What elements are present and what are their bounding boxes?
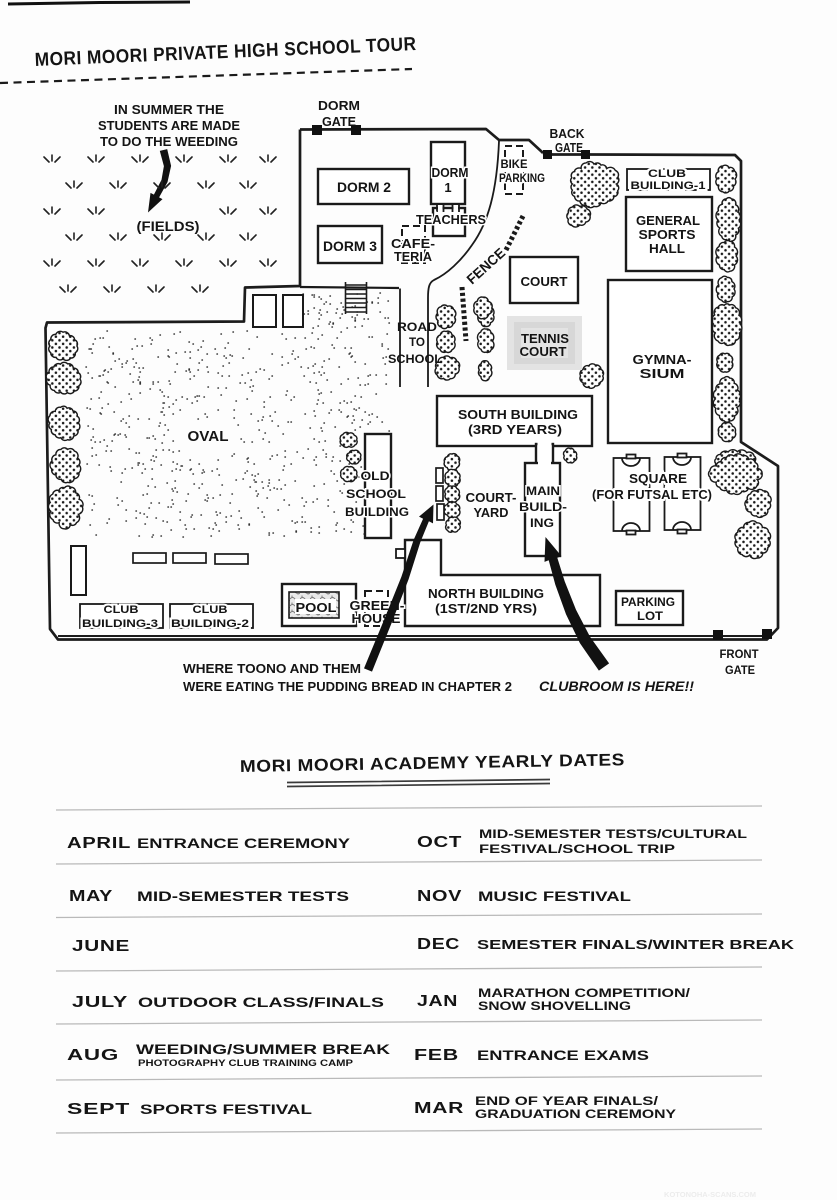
svg-text:OVAL: OVAL bbox=[188, 429, 229, 445]
svg-text:CLUB: CLUB bbox=[648, 168, 686, 180]
svg-text:BUILDING-3: BUILDING-3 bbox=[82, 618, 158, 630]
svg-text:BACK: BACK bbox=[550, 126, 586, 141]
svg-text:JULY: JULY bbox=[72, 994, 128, 1011]
svg-text:WHERE TOONO AND THEM: WHERE TOONO AND THEM bbox=[183, 661, 361, 676]
svg-text:BUILDING-1: BUILDING-1 bbox=[631, 180, 706, 192]
svg-text:WEEDING/SUMMER BREAK: WEEDING/SUMMER BREAK bbox=[136, 1042, 390, 1057]
svg-text:MID-SEMESTER TESTS/CULTURAL: MID-SEMESTER TESTS/CULTURAL bbox=[479, 827, 747, 841]
svg-text:DEC: DEC bbox=[417, 936, 460, 953]
svg-text:CLUBROOM IS HERE!!: CLUBROOM IS HERE!! bbox=[539, 679, 695, 694]
svg-text:ING: ING bbox=[530, 516, 554, 530]
svg-text:KOTONOHA-SCANS.COM: KOTONOHA-SCANS.COM bbox=[664, 1190, 756, 1199]
svg-text:SEMESTER FINALS/WINTER BREAK: SEMESTER FINALS/WINTER BREAK bbox=[477, 937, 795, 952]
svg-text:JUNE: JUNE bbox=[72, 938, 130, 955]
svg-text:GATE: GATE bbox=[322, 114, 356, 129]
svg-text:BUILD-: BUILD- bbox=[519, 500, 567, 514]
svg-text:JAN: JAN bbox=[417, 993, 458, 1010]
svg-text:ENTRANCE EXAMS: ENTRANCE EXAMS bbox=[477, 1048, 649, 1063]
svg-text:MAY: MAY bbox=[69, 888, 113, 905]
svg-text:SPORTS: SPORTS bbox=[639, 228, 696, 242]
svg-text:NORTH BUILDING: NORTH BUILDING bbox=[428, 586, 544, 601]
svg-text:TERIA: TERIA bbox=[394, 249, 433, 264]
svg-text:FESTIVAL/SCHOOL TRIP: FESTIVAL/SCHOOL TRIP bbox=[479, 842, 675, 856]
svg-text:GATE: GATE bbox=[725, 663, 755, 677]
svg-text:GATE: GATE bbox=[555, 140, 583, 155]
svg-text:MARATHON COMPETITION/: MARATHON COMPETITION/ bbox=[478, 986, 691, 1000]
svg-text:APRIL: APRIL bbox=[67, 835, 131, 852]
svg-text:CLUB: CLUB bbox=[193, 604, 228, 616]
svg-text:FRONT: FRONT bbox=[720, 647, 760, 661]
svg-text:1: 1 bbox=[444, 180, 451, 195]
svg-text:CLUB: CLUB bbox=[104, 604, 139, 616]
svg-text:SCHOOL: SCHOOL bbox=[388, 352, 442, 366]
svg-text:DORM 2: DORM 2 bbox=[337, 179, 391, 195]
svg-text:GENERAL: GENERAL bbox=[636, 214, 700, 228]
svg-text:PARKING: PARKING bbox=[621, 595, 675, 609]
svg-text:LOT: LOT bbox=[637, 609, 664, 623]
svg-text:MID-SEMESTER TESTS: MID-SEMESTER TESTS bbox=[137, 889, 349, 904]
svg-text:OLD: OLD bbox=[361, 469, 390, 483]
svg-text:COURT: COURT bbox=[520, 345, 567, 359]
svg-text:HALL: HALL bbox=[649, 242, 685, 256]
svg-text:NOV: NOV bbox=[417, 888, 462, 905]
svg-text:ENTRANCE CEREMONY: ENTRANCE CEREMONY bbox=[137, 836, 350, 851]
svg-text:PHOTOGRAPHY CLUB TRAINING CAMP: PHOTOGRAPHY CLUB TRAINING CAMP bbox=[138, 1058, 353, 1068]
svg-text:MAIN: MAIN bbox=[526, 484, 560, 498]
svg-text:SEPT: SEPT bbox=[67, 1101, 130, 1118]
svg-text:COURT-: COURT- bbox=[466, 490, 517, 505]
svg-text:MUSIC FESTIVAL: MUSIC FESTIVAL bbox=[478, 889, 631, 904]
svg-text:(FIELDS): (FIELDS) bbox=[137, 219, 200, 234]
svg-text:(FOR FUTSAL ETC): (FOR FUTSAL ETC) bbox=[592, 487, 712, 502]
svg-text:ROAD: ROAD bbox=[397, 320, 437, 334]
svg-text:SIUM: SIUM bbox=[640, 366, 685, 381]
svg-text:OUTDOOR CLASS/FINALS: OUTDOOR CLASS/FINALS bbox=[138, 995, 384, 1010]
svg-text:COURT: COURT bbox=[521, 274, 568, 289]
svg-text:TEACHERS: TEACHERS bbox=[416, 212, 486, 227]
svg-text:BIKE: BIKE bbox=[501, 159, 528, 171]
svg-text:(3RD YEARS): (3RD YEARS) bbox=[468, 422, 562, 437]
svg-text:WERE EATING THE PUDDING BREAD: WERE EATING THE PUDDING BREAD IN CHAPTER… bbox=[183, 679, 512, 694]
svg-text:TO: TO bbox=[409, 335, 425, 349]
svg-text:POOL: POOL bbox=[296, 600, 337, 615]
svg-text:SOUTH BUILDING: SOUTH BUILDING bbox=[458, 407, 578, 422]
svg-text:MAR: MAR bbox=[414, 1100, 464, 1117]
svg-text:BUILDING: BUILDING bbox=[345, 505, 409, 519]
svg-text:SNOW SHOVELLING: SNOW SHOVELLING bbox=[478, 999, 631, 1013]
svg-text:(1ST/2ND YRS): (1ST/2ND YRS) bbox=[435, 601, 537, 616]
svg-text:TO DO THE WEEDING: TO DO THE WEEDING bbox=[100, 134, 238, 149]
svg-text:OCT: OCT bbox=[417, 834, 462, 851]
svg-text:TENNIS: TENNIS bbox=[521, 332, 569, 346]
svg-text:END OF YEAR FINALS/: END OF YEAR FINALS/ bbox=[475, 1094, 659, 1108]
svg-text:DORM: DORM bbox=[318, 98, 360, 113]
svg-text:GYMNA-: GYMNA- bbox=[633, 352, 692, 367]
svg-text:IN SUMMER THE: IN SUMMER THE bbox=[114, 102, 224, 117]
svg-text:DORM: DORM bbox=[432, 165, 469, 180]
svg-text:YARD: YARD bbox=[474, 505, 509, 520]
svg-text:PARKING: PARKING bbox=[499, 173, 545, 185]
svg-text:SCHOOL: SCHOOL bbox=[346, 487, 406, 501]
svg-text:SPORTS FESTIVAL: SPORTS FESTIVAL bbox=[140, 1102, 312, 1117]
svg-text:SQUARE: SQUARE bbox=[629, 471, 687, 486]
svg-text:DORM 3: DORM 3 bbox=[323, 238, 377, 254]
svg-text:BUILDING-2: BUILDING-2 bbox=[171, 618, 249, 630]
svg-text:FEB: FEB bbox=[414, 1047, 459, 1064]
svg-text:STUDENTS ARE MADE: STUDENTS ARE MADE bbox=[98, 118, 240, 133]
svg-text:AUG: AUG bbox=[67, 1047, 119, 1064]
svg-text:GRADUATION CEREMONY: GRADUATION CEREMONY bbox=[475, 1107, 676, 1121]
